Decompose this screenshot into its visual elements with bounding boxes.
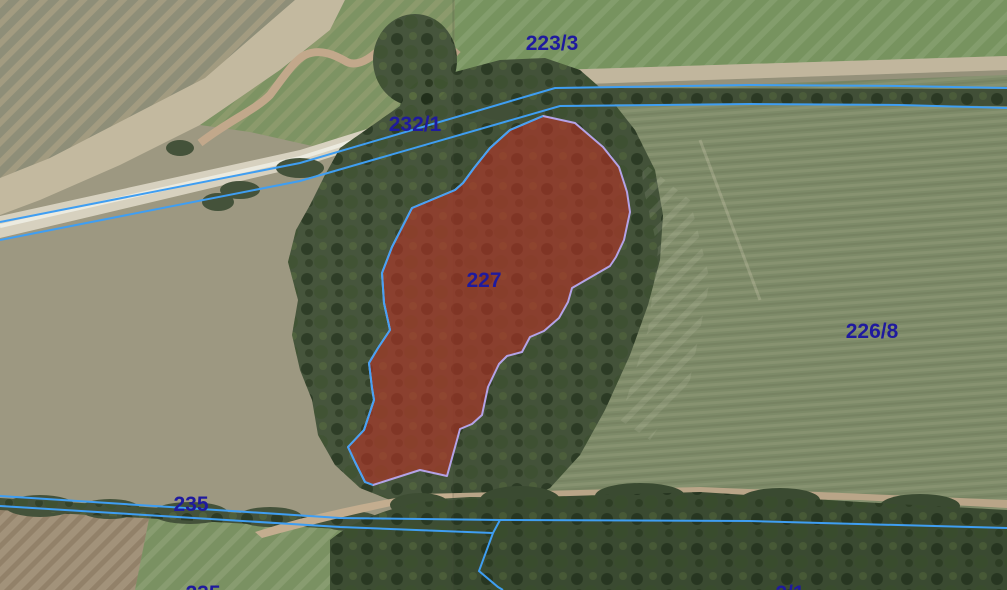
parcel-label-226-8: 226/8: [846, 320, 899, 343]
parcel-label-223-3: 223/3: [526, 32, 579, 55]
parcel-label-2-1: 2/1: [775, 582, 805, 590]
parcel-label-232-1: 232/1: [389, 113, 442, 136]
map-viewport[interactable]: 223/3 232/1 227 226/8 235 235 2/1: [0, 0, 1007, 590]
parcel-label-227: 227: [466, 269, 501, 292]
tree-blob: [166, 140, 194, 156]
parcel-label-235-bottom: 235: [185, 582, 220, 590]
field-plowed-ridges: [0, 505, 150, 590]
map-canvas: 223/3 232/1 227 226/8 235 235 2/1: [0, 0, 1007, 590]
tree-blob: [276, 158, 324, 178]
parcel-label-235: 235: [173, 493, 208, 516]
